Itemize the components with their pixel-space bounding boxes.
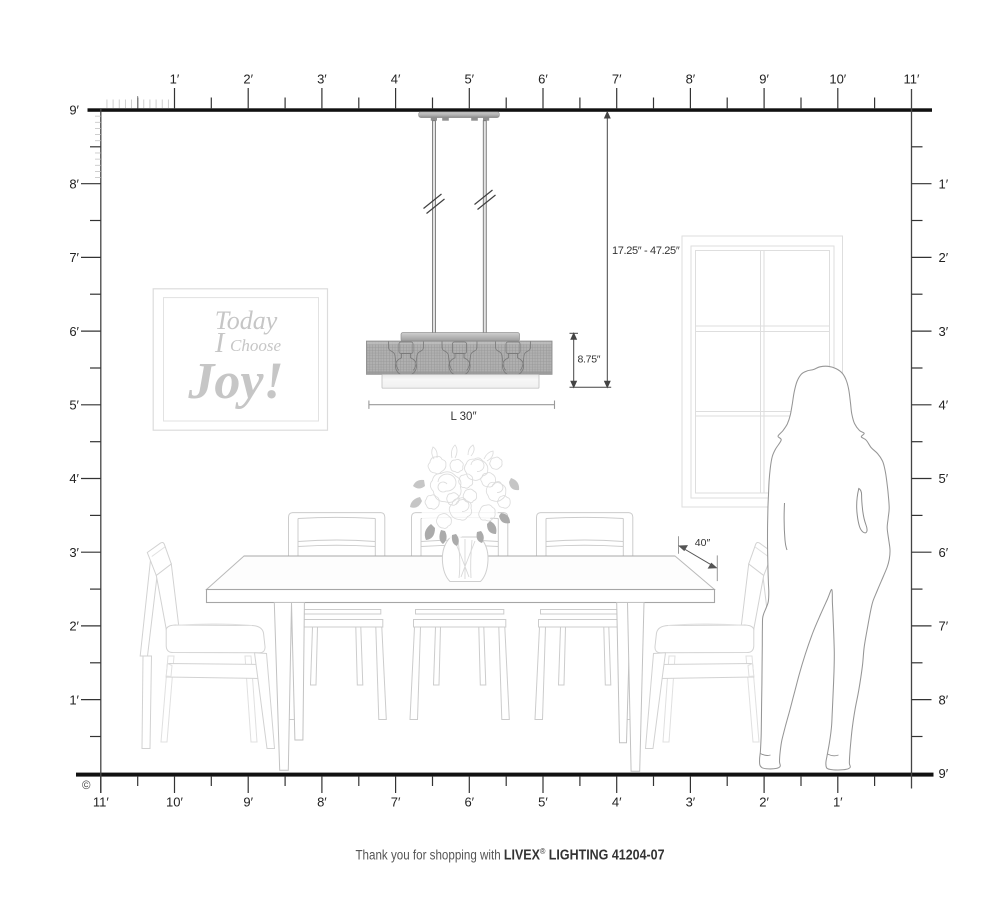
svg-text:2′: 2′ (69, 619, 79, 634)
svg-text:Joy!: Joy! (187, 353, 283, 410)
svg-text:2′: 2′ (243, 72, 253, 87)
svg-text:1′: 1′ (170, 72, 180, 87)
svg-text:6′: 6′ (69, 324, 79, 339)
svg-text:9′: 9′ (939, 766, 949, 781)
svg-text:6′: 6′ (939, 545, 949, 560)
svg-text:4′: 4′ (69, 471, 79, 486)
svg-text:9′: 9′ (69, 103, 79, 118)
svg-text:8′: 8′ (686, 72, 696, 87)
svg-text:4′: 4′ (612, 795, 622, 810)
svg-text:6′: 6′ (464, 795, 474, 810)
svg-text:1′: 1′ (939, 176, 949, 191)
svg-text:10′: 10′ (829, 72, 846, 87)
svg-text:3′: 3′ (317, 72, 327, 87)
svg-text:9′: 9′ (759, 72, 769, 87)
svg-text:©: © (82, 780, 91, 792)
svg-text:10′: 10′ (166, 795, 183, 810)
svg-text:7′: 7′ (391, 795, 401, 810)
svg-text:7′: 7′ (69, 250, 79, 265)
svg-text:5′: 5′ (538, 795, 548, 810)
svg-text:5′: 5′ (69, 398, 79, 413)
svg-text:3′: 3′ (939, 324, 949, 339)
svg-text:3′: 3′ (686, 795, 696, 810)
svg-text:11′: 11′ (93, 795, 109, 810)
svg-text:8′: 8′ (317, 795, 327, 810)
svg-text:5′: 5′ (464, 72, 474, 87)
svg-text:17.25″ - 47.25″: 17.25″ - 47.25″ (612, 245, 680, 257)
svg-text:2′: 2′ (759, 795, 769, 810)
svg-text:3′: 3′ (69, 545, 79, 560)
svg-text:40″: 40″ (695, 537, 711, 549)
svg-text:1′: 1′ (69, 692, 79, 707)
svg-text:6′: 6′ (538, 72, 548, 87)
svg-text:4′: 4′ (939, 398, 949, 413)
svg-text:5′: 5′ (939, 471, 949, 486)
svg-text:8.75″: 8.75″ (578, 354, 601, 366)
svg-text:8′: 8′ (69, 176, 79, 191)
svg-text:L 30″: L 30″ (450, 411, 476, 423)
svg-text:11′: 11′ (904, 72, 920, 87)
svg-text:2′: 2′ (939, 250, 949, 265)
svg-text:7′: 7′ (612, 72, 622, 87)
svg-text:4′: 4′ (391, 72, 401, 87)
svg-text:7′: 7′ (939, 619, 949, 634)
svg-text:9′: 9′ (243, 795, 253, 810)
svg-text:1′: 1′ (833, 795, 843, 810)
svg-text:8′: 8′ (939, 692, 949, 707)
